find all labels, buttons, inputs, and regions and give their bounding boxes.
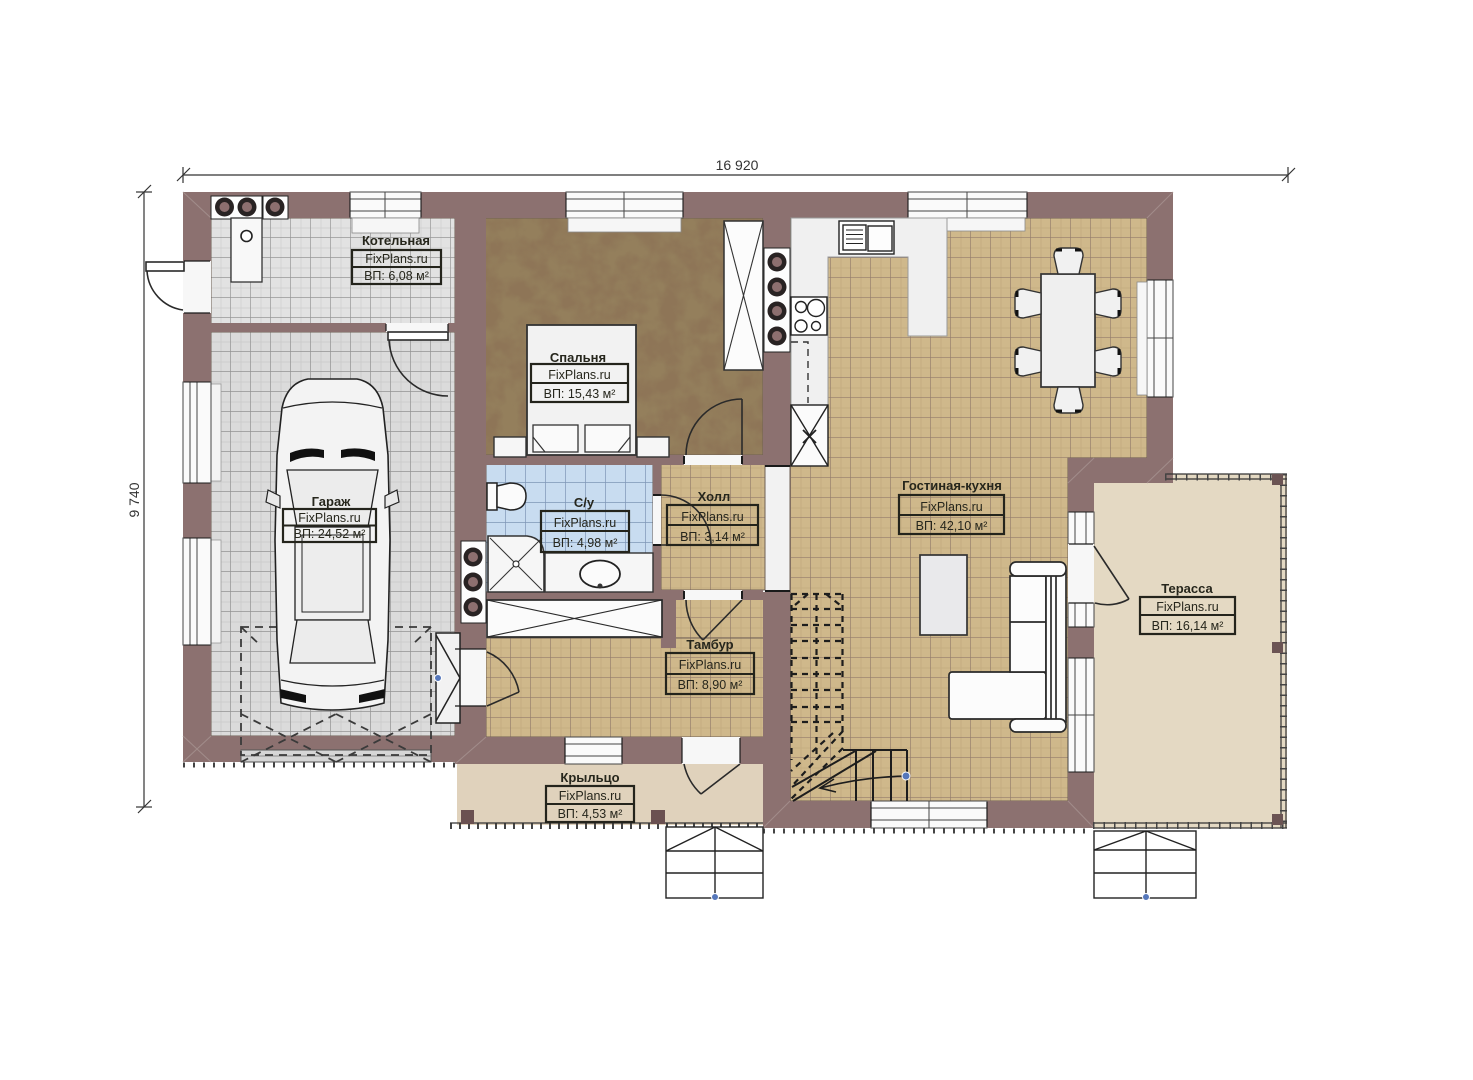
svg-text:9 740: 9 740 bbox=[126, 482, 142, 517]
svg-text:Крыльцо: Крыльцо bbox=[560, 770, 619, 785]
svg-text:ВП: 24,52 м²: ВП: 24,52 м² bbox=[294, 527, 366, 541]
svg-text:ВП: 15,43 м²: ВП: 15,43 м² bbox=[544, 387, 616, 401]
svg-text:FixPlans.ru: FixPlans.ru bbox=[559, 789, 622, 803]
svg-text:Спальня: Спальня bbox=[550, 350, 606, 365]
svg-text:ВП: 3,14 м²: ВП: 3,14 м² bbox=[680, 530, 745, 544]
svg-text:Гараж: Гараж bbox=[312, 494, 352, 509]
svg-text:Холл: Холл bbox=[698, 489, 731, 504]
svg-text:FixPlans.ru: FixPlans.ru bbox=[298, 511, 361, 525]
svg-text:Терасса: Терасса bbox=[1161, 581, 1213, 596]
svg-text:FixPlans.ru: FixPlans.ru bbox=[554, 516, 617, 530]
svg-text:16 920: 16 920 bbox=[716, 157, 759, 173]
svg-text:Тамбур: Тамбур bbox=[686, 637, 733, 652]
svg-text:ВП: 16,14 м²: ВП: 16,14 м² bbox=[1152, 619, 1224, 633]
svg-text:FixPlans.ru: FixPlans.ru bbox=[920, 500, 983, 514]
svg-text:FixPlans.ru: FixPlans.ru bbox=[1156, 600, 1219, 614]
svg-text:ВП: 4,53 м²: ВП: 4,53 м² bbox=[558, 807, 623, 821]
svg-text:FixPlans.ru: FixPlans.ru bbox=[679, 658, 742, 672]
svg-text:FixPlans.ru: FixPlans.ru bbox=[681, 510, 744, 524]
svg-text:ВП: 8,90 м²: ВП: 8,90 м² bbox=[678, 678, 743, 692]
svg-text:FixPlans.ru: FixPlans.ru bbox=[365, 252, 428, 266]
svg-text:С/у: С/у bbox=[574, 495, 595, 510]
svg-text:ВП: 6,08 м²: ВП: 6,08 м² bbox=[364, 269, 429, 283]
svg-text:ВП: 4,98 м²: ВП: 4,98 м² bbox=[553, 536, 618, 550]
svg-text:Гостиная-кухня: Гостиная-кухня bbox=[902, 478, 1002, 493]
svg-text:ВП: 42,10 м²: ВП: 42,10 м² bbox=[916, 519, 988, 533]
svg-text:FixPlans.ru: FixPlans.ru bbox=[548, 368, 611, 382]
svg-text:Котельная: Котельная bbox=[362, 233, 430, 248]
